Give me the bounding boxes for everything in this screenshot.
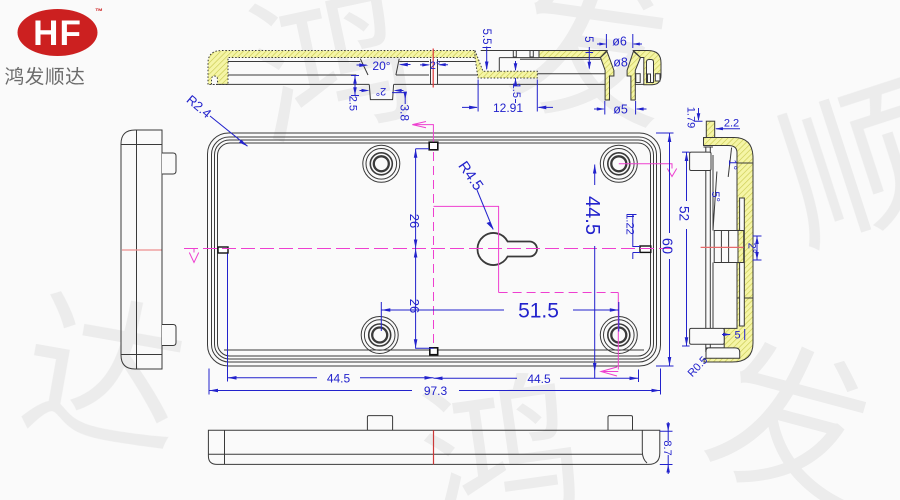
svg-text:51.5: 51.5 [518, 300, 559, 323]
svg-text:2.5: 2.5 [347, 96, 359, 111]
svg-text:52: 52 [677, 206, 692, 221]
svg-text:60: 60 [659, 238, 675, 254]
svg-text:2°: 2° [376, 85, 387, 97]
svg-text:5.5: 5.5 [480, 29, 492, 45]
svg-text:ø5: ø5 [613, 103, 628, 117]
svg-text:1.79: 1.79 [684, 107, 696, 128]
svg-text:5: 5 [734, 330, 740, 342]
svg-text:26: 26 [407, 214, 422, 228]
svg-text:97.3: 97.3 [424, 384, 448, 398]
svg-text:44.5: 44.5 [327, 371, 351, 385]
svg-text:44.5: 44.5 [527, 372, 551, 386]
svg-text:ø6: ø6 [612, 35, 627, 49]
svg-text:1.22: 1.22 [624, 213, 636, 234]
svg-text:5°: 5° [709, 191, 721, 202]
svg-text:1.5: 1.5 [510, 83, 522, 98]
svg-text:44.5: 44.5 [581, 196, 603, 235]
svg-text:2°: 2° [746, 243, 758, 254]
svg-text:20°: 20° [372, 59, 390, 73]
svg-text:2°: 2° [430, 60, 441, 72]
svg-text:8.7: 8.7 [661, 440, 673, 455]
svg-text:HF: HF [33, 14, 82, 53]
svg-text:2.2: 2.2 [724, 117, 739, 129]
svg-text:3.8: 3.8 [398, 104, 412, 121]
svg-text:5: 5 [582, 36, 594, 42]
svg-text:™: ™ [95, 7, 103, 16]
svg-text:26: 26 [407, 299, 422, 313]
svg-text:1°: 1° [726, 160, 738, 171]
svg-text:12.91: 12.91 [493, 101, 523, 115]
svg-text:ø8: ø8 [613, 56, 628, 70]
